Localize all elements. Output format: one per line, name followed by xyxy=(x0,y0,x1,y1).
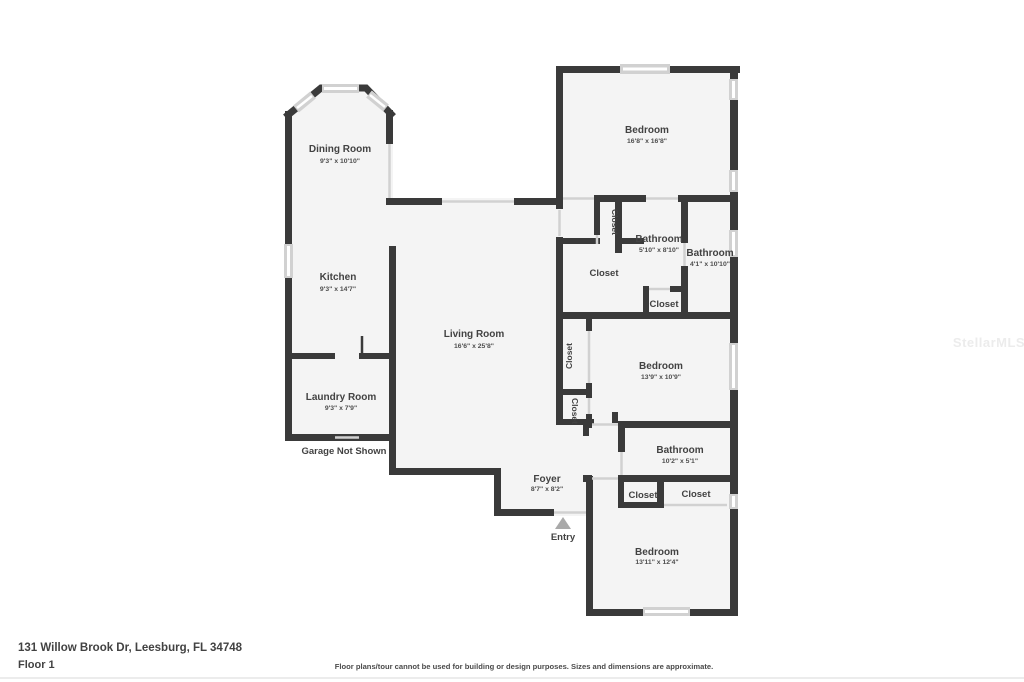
bathroom-hall-dims: 5'10" x 8'10" xyxy=(639,247,679,254)
foyer-label: Foyer xyxy=(533,474,560,485)
entry-arrow-icon xyxy=(555,517,571,529)
foyer-dims: 8'7" x 8'2" xyxy=(531,486,563,493)
laundry-room-label: Laundry Room xyxy=(306,392,377,403)
floor-plan: Dining Room 9'3" x 10'10" Kitchen 9'3" x… xyxy=(0,0,1024,682)
closet-label-walkin: Closet xyxy=(589,268,619,279)
garage-note: Garage Not Shown xyxy=(302,446,387,457)
bathroom-lower-label: Bathroom xyxy=(656,445,703,456)
entry-marker: Entry xyxy=(551,517,576,543)
bathroom-hall-label: Bathroom xyxy=(635,234,682,245)
kitchen-label: Kitchen xyxy=(320,272,357,283)
watermark: StellarMLS xyxy=(953,335,1024,350)
laundry-room-dims: 9'3" x 7'9" xyxy=(325,405,357,412)
bathroom-lower-dims: 10'2" x 5'1" xyxy=(662,458,698,465)
bedroom-bottom-label: Bedroom xyxy=(635,547,679,558)
bedroom-top-label: Bedroom xyxy=(625,125,669,136)
living-room-dims: 16'6" x 25'8" xyxy=(454,343,494,350)
closet-label-bottom-left: Closet xyxy=(628,490,658,501)
dining-room-dims: 9'3" x 10'10" xyxy=(320,158,360,165)
bathroom-ensuite-label: Bathroom xyxy=(686,248,733,259)
closet-label-hall-lower: Closet xyxy=(570,398,580,424)
bedroom-top-dims: 16'8" x 16'8" xyxy=(627,138,667,145)
closet-label-bottom-right: Closet xyxy=(681,489,711,500)
address-text: 131 Willow Brook Dr, Leesburg, FL 34748 xyxy=(18,642,243,654)
bottom-divider xyxy=(0,677,1024,679)
bedroom-middle-label: Bedroom xyxy=(639,361,683,372)
footer: 131 Willow Brook Dr, Leesburg, FL 34748 … xyxy=(18,642,713,671)
dining-room-label: Dining Room xyxy=(309,144,371,155)
closet-label-hall-upper: Closet xyxy=(564,343,574,369)
entry-label: Entry xyxy=(551,532,576,543)
living-room-label: Living Room xyxy=(444,329,505,340)
bedroom-middle-dims: 13'9" x 10'9" xyxy=(641,374,681,381)
floor-label: Floor 1 xyxy=(18,659,55,671)
bedroom-bottom-dims: 13'11" x 12'4" xyxy=(635,559,678,566)
disclaimer-text: Floor plans/tour cannot be used for buil… xyxy=(335,662,713,671)
closet-label-bath: Closet xyxy=(649,299,679,310)
bathroom-ensuite-dims: 4'1" x 10'10" xyxy=(690,261,730,268)
closet-label-top-small: Closet xyxy=(610,209,620,235)
kitchen-dims: 9'3" x 14'7" xyxy=(320,286,356,293)
